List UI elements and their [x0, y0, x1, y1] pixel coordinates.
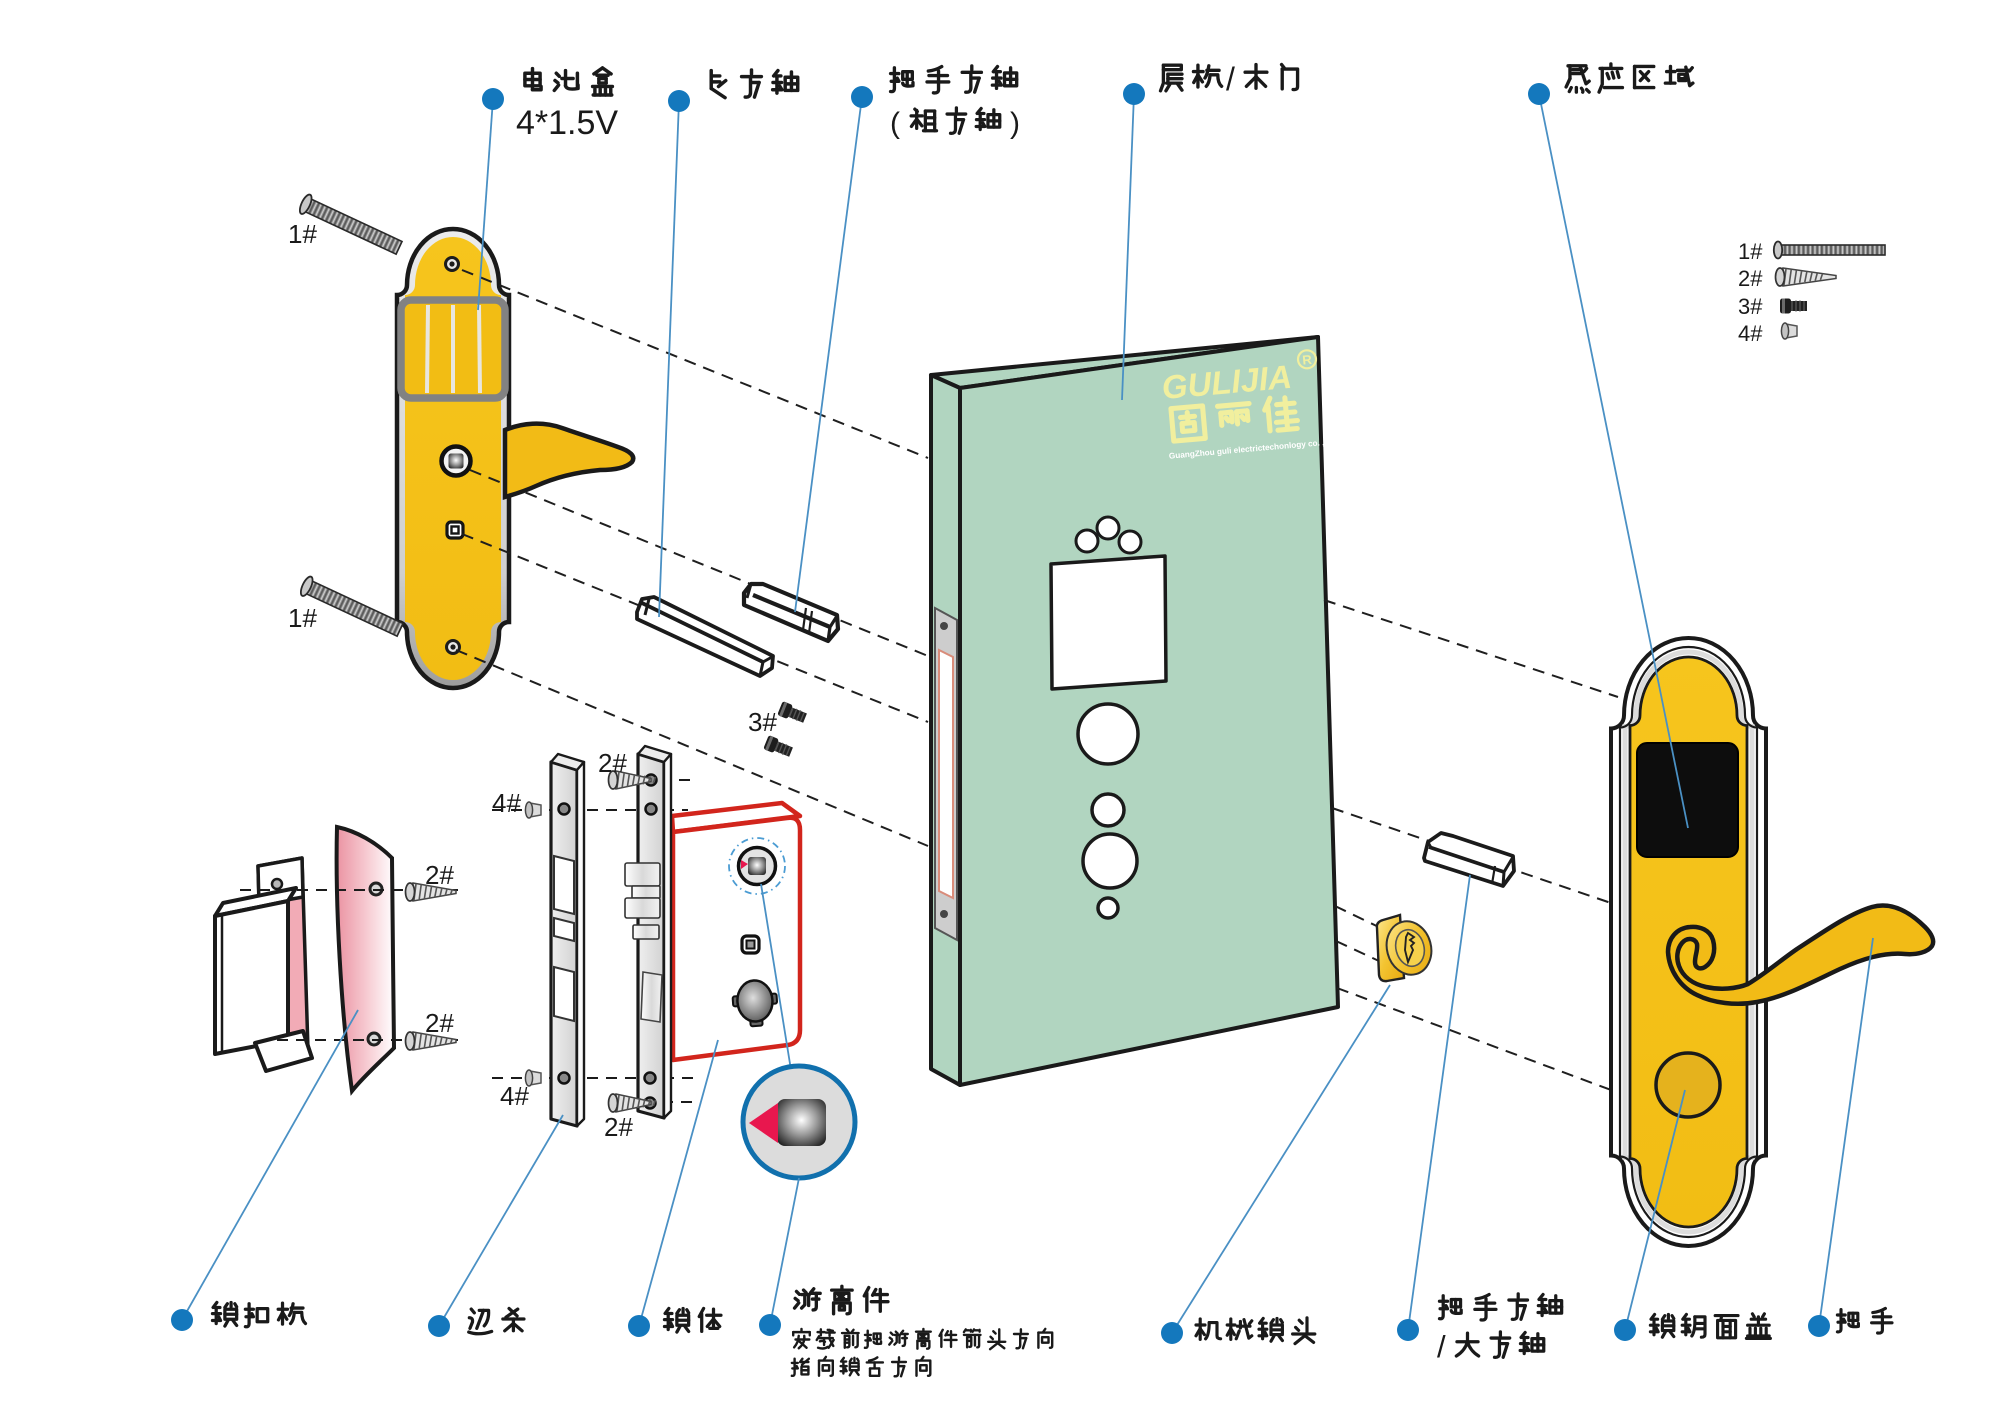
- svg-text:2#: 2#: [425, 1008, 454, 1038]
- svg-text:/: /: [1226, 61, 1235, 97]
- svg-text:4#: 4#: [1738, 321, 1763, 346]
- svg-text:2#: 2#: [598, 748, 627, 778]
- svg-text:4#: 4#: [492, 788, 521, 818]
- svg-text:2#: 2#: [425, 860, 454, 890]
- svg-text:3#: 3#: [748, 707, 777, 737]
- svg-text:4#: 4#: [500, 1081, 529, 1111]
- svg-text:2#: 2#: [604, 1112, 633, 1142]
- svg-text:1#: 1#: [1738, 239, 1763, 264]
- svg-text:/: /: [1437, 1329, 1446, 1364]
- svg-text:1#: 1#: [288, 219, 317, 249]
- svg-text:(: (: [890, 107, 900, 140]
- svg-text:4*1.5V: 4*1.5V: [516, 104, 618, 142]
- svg-text:): ): [1010, 107, 1020, 140]
- svg-text:2#: 2#: [1738, 266, 1763, 291]
- svg-text:1#: 1#: [288, 603, 317, 633]
- svg-text:3#: 3#: [1738, 294, 1763, 319]
